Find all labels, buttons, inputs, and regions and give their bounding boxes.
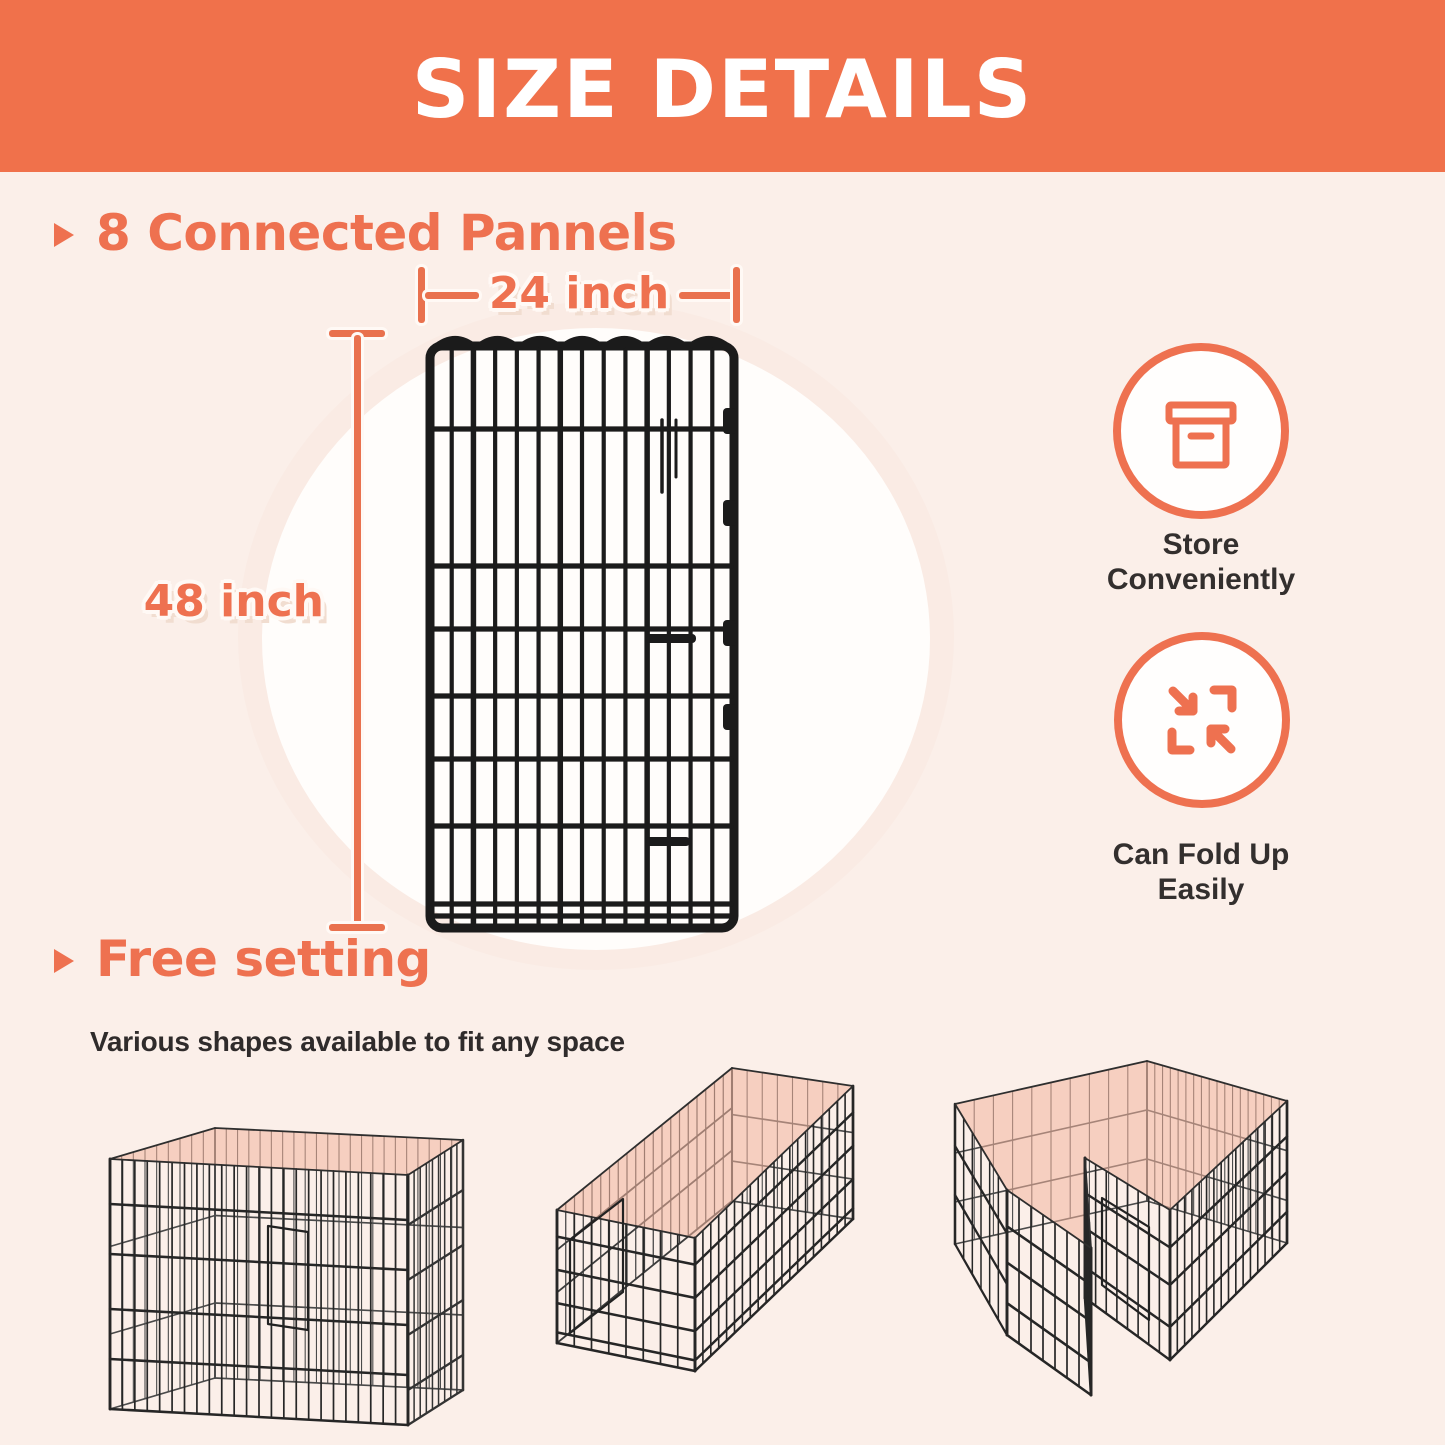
- header-banner: SIZE DETAILS: [0, 0, 1445, 172]
- panels-heading-text: 8 Connected Pannels: [96, 204, 677, 262]
- dimension-line-left: [425, 292, 479, 299]
- storage-box-icon: [1151, 381, 1251, 481]
- width-dimension: 24 inch: [418, 266, 740, 324]
- dimension-line-right: [679, 292, 733, 299]
- free-setting-subtitle: Various shapes available to fit any spac…: [90, 1026, 625, 1058]
- rectangle-playpen-illustration: [548, 1056, 863, 1391]
- dimension-tick-right: [733, 267, 740, 323]
- height-dimension-label: 48 inch: [112, 576, 324, 627]
- l-shape-playpen-illustration: [945, 1050, 1295, 1412]
- wire-panel-illustration: [424, 332, 740, 936]
- height-dimension: [329, 330, 385, 931]
- square-playpen-illustration: [78, 1116, 483, 1438]
- size-details-infographic: SIZE DETAILS 8 Connected Pannels 24 inch…: [0, 0, 1445, 1445]
- feature-circle-store: [1113, 343, 1289, 519]
- section-heading-free-setting: Free setting: [54, 930, 431, 988]
- free-setting-heading-text: Free setting: [96, 930, 431, 988]
- section-heading-panels: 8 Connected Pannels: [54, 204, 677, 262]
- feature-circle-fold: [1114, 632, 1290, 808]
- triangle-bullet-icon: [54, 949, 74, 973]
- feature-label-store: Store Conveniently: [1081, 528, 1321, 597]
- page-title: SIZE DETAILS: [412, 37, 1034, 136]
- dimension-line-vertical: [354, 335, 361, 926]
- feature-label-fold: Can Fold Up Easily: [1076, 838, 1326, 907]
- triangle-bullet-icon: [54, 223, 74, 247]
- fold-arrows-icon: [1152, 670, 1252, 770]
- dimension-tick-left: [418, 267, 425, 323]
- width-dimension-label: 24 inch: [489, 268, 669, 319]
